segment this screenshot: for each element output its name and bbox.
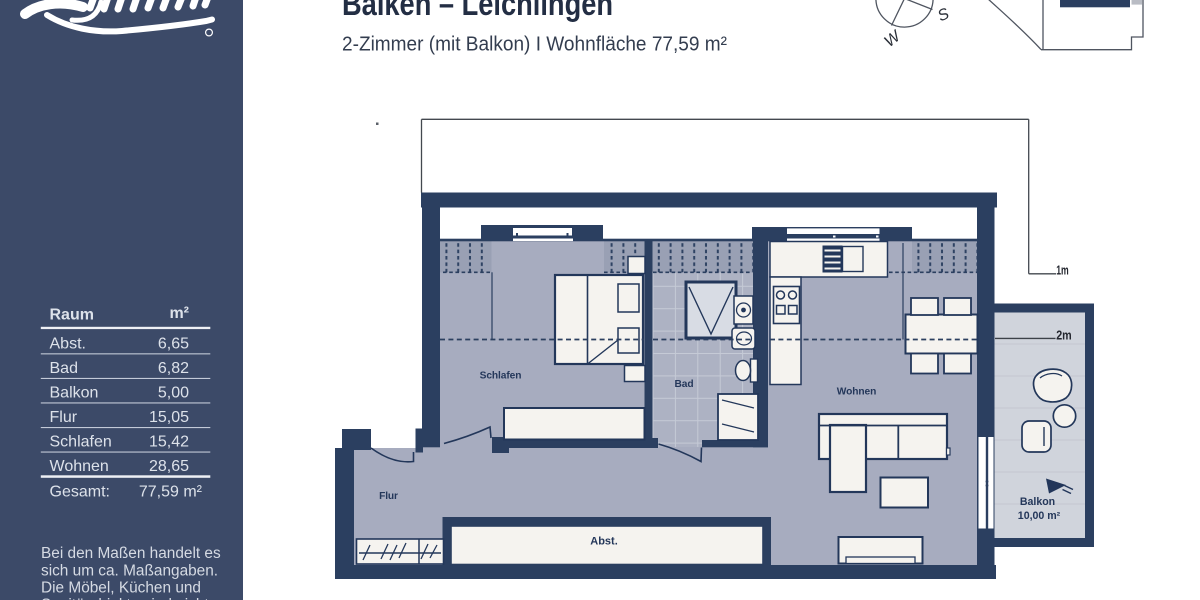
svg-text:Wohnen: Wohnen — [837, 387, 876, 398]
svg-text:Bad: Bad — [675, 379, 694, 390]
svg-text:5,00: 5,00 — [158, 384, 189, 401]
svg-text:Balkon: Balkon — [1020, 496, 1055, 508]
svg-text:Schlafen: Schlafen — [50, 433, 112, 450]
svg-text:Abst.: Abst. — [50, 335, 86, 352]
svg-text:Bei den Maßen handelt es: Bei den Maßen handelt es — [41, 545, 221, 562]
svg-text:28,65: 28,65 — [149, 458, 189, 475]
svg-text:Flur: Flur — [379, 491, 398, 502]
svg-text:sich um ca. Maßangaben.: sich um ca. Maßangaben. — [41, 562, 218, 579]
svg-text:W: W — [881, 27, 905, 51]
svg-text:2m: 2m — [1056, 328, 1072, 342]
svg-text:Raum: Raum — [50, 307, 94, 324]
svg-text:Wohnen: Wohnen — [50, 458, 109, 475]
svg-text:Abst.: Abst. — [590, 536, 618, 548]
svg-text:6,82: 6,82 — [158, 360, 189, 377]
svg-text:Bad: Bad — [50, 360, 78, 377]
svg-text:Gesamt:: Gesamt: — [50, 484, 110, 501]
svg-text:Sanitärobjekte sind nicht: Sanitärobjekte sind nicht — [41, 596, 209, 600]
svg-text:10,00 m²: 10,00 m² — [1018, 510, 1061, 522]
svg-text:Flur: Flur — [50, 409, 78, 426]
svg-text:m²: m² — [169, 305, 189, 322]
svg-text:Schlafen: Schlafen — [480, 371, 522, 382]
svg-text:1m: 1m — [1056, 263, 1069, 278]
svg-text:Die Möbel, Küchen und: Die Möbel, Küchen und — [41, 580, 201, 597]
svg-text:Balken – Leichlingen: Balken – Leichlingen — [342, 0, 613, 23]
svg-text:77,59 m²: 77,59 m² — [139, 484, 203, 501]
svg-text:15,05: 15,05 — [149, 409, 189, 426]
svg-text:Balkon: Balkon — [50, 384, 99, 401]
svg-text:15,42: 15,42 — [149, 433, 189, 450]
svg-text:6,65: 6,65 — [158, 335, 189, 352]
svg-text:2-Zimmer (mit Balkon) I Wohn: 2-Zimmer (mit Balkon) I Wohnfläche 77,59… — [342, 33, 727, 55]
svg-text:S: S — [935, 5, 952, 25]
